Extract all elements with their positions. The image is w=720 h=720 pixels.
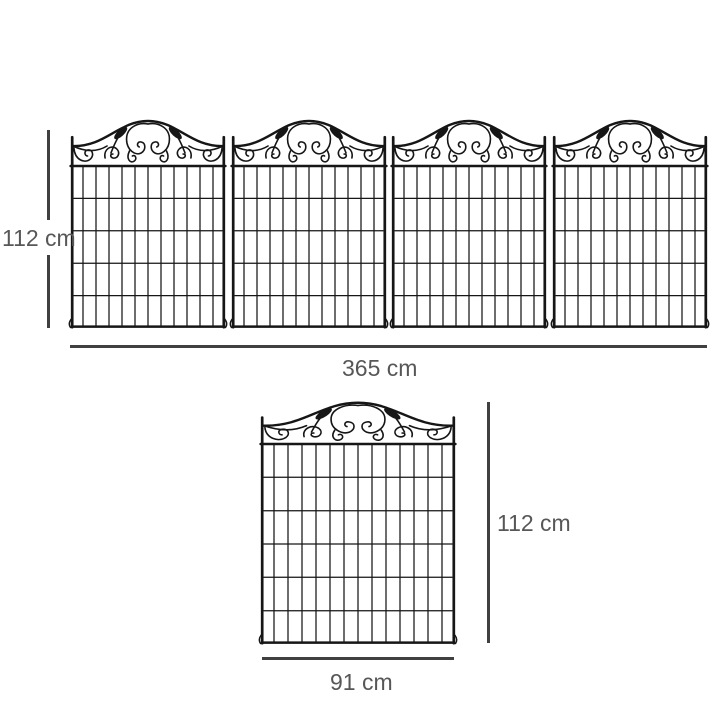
panel-width-line xyxy=(262,657,454,660)
fence-panel xyxy=(552,118,708,328)
fence-grid xyxy=(551,137,708,327)
fence-ornament xyxy=(555,121,705,162)
fence-ornament xyxy=(234,121,384,162)
fence-panel xyxy=(260,400,456,644)
row-height-line-bottom xyxy=(47,255,50,328)
single-panel-illustration xyxy=(260,400,456,644)
fence-grid xyxy=(69,137,226,327)
fence-grid xyxy=(259,418,456,644)
fence-panel xyxy=(391,118,547,328)
row-height-line-top xyxy=(47,130,50,220)
fence-ornament xyxy=(264,403,453,440)
fence-grid xyxy=(391,137,548,327)
fence-row-illustration xyxy=(70,118,708,328)
row-width-line xyxy=(70,345,707,348)
row-height-label: 112 cm xyxy=(2,226,76,250)
fence-dimension-diagram: 112 cm 365 cm 112 cm 91 cm xyxy=(0,0,720,720)
fence-panel xyxy=(70,118,226,328)
fence-panel xyxy=(231,118,387,328)
fence-grid xyxy=(230,137,387,327)
fence-ornament xyxy=(394,121,544,162)
fence-ornament xyxy=(73,121,223,162)
panel-height-label: 112 cm xyxy=(497,511,571,535)
row-width-label: 365 cm xyxy=(342,356,417,380)
panel-height-line xyxy=(487,402,490,643)
panel-width-label: 91 cm xyxy=(330,670,393,694)
